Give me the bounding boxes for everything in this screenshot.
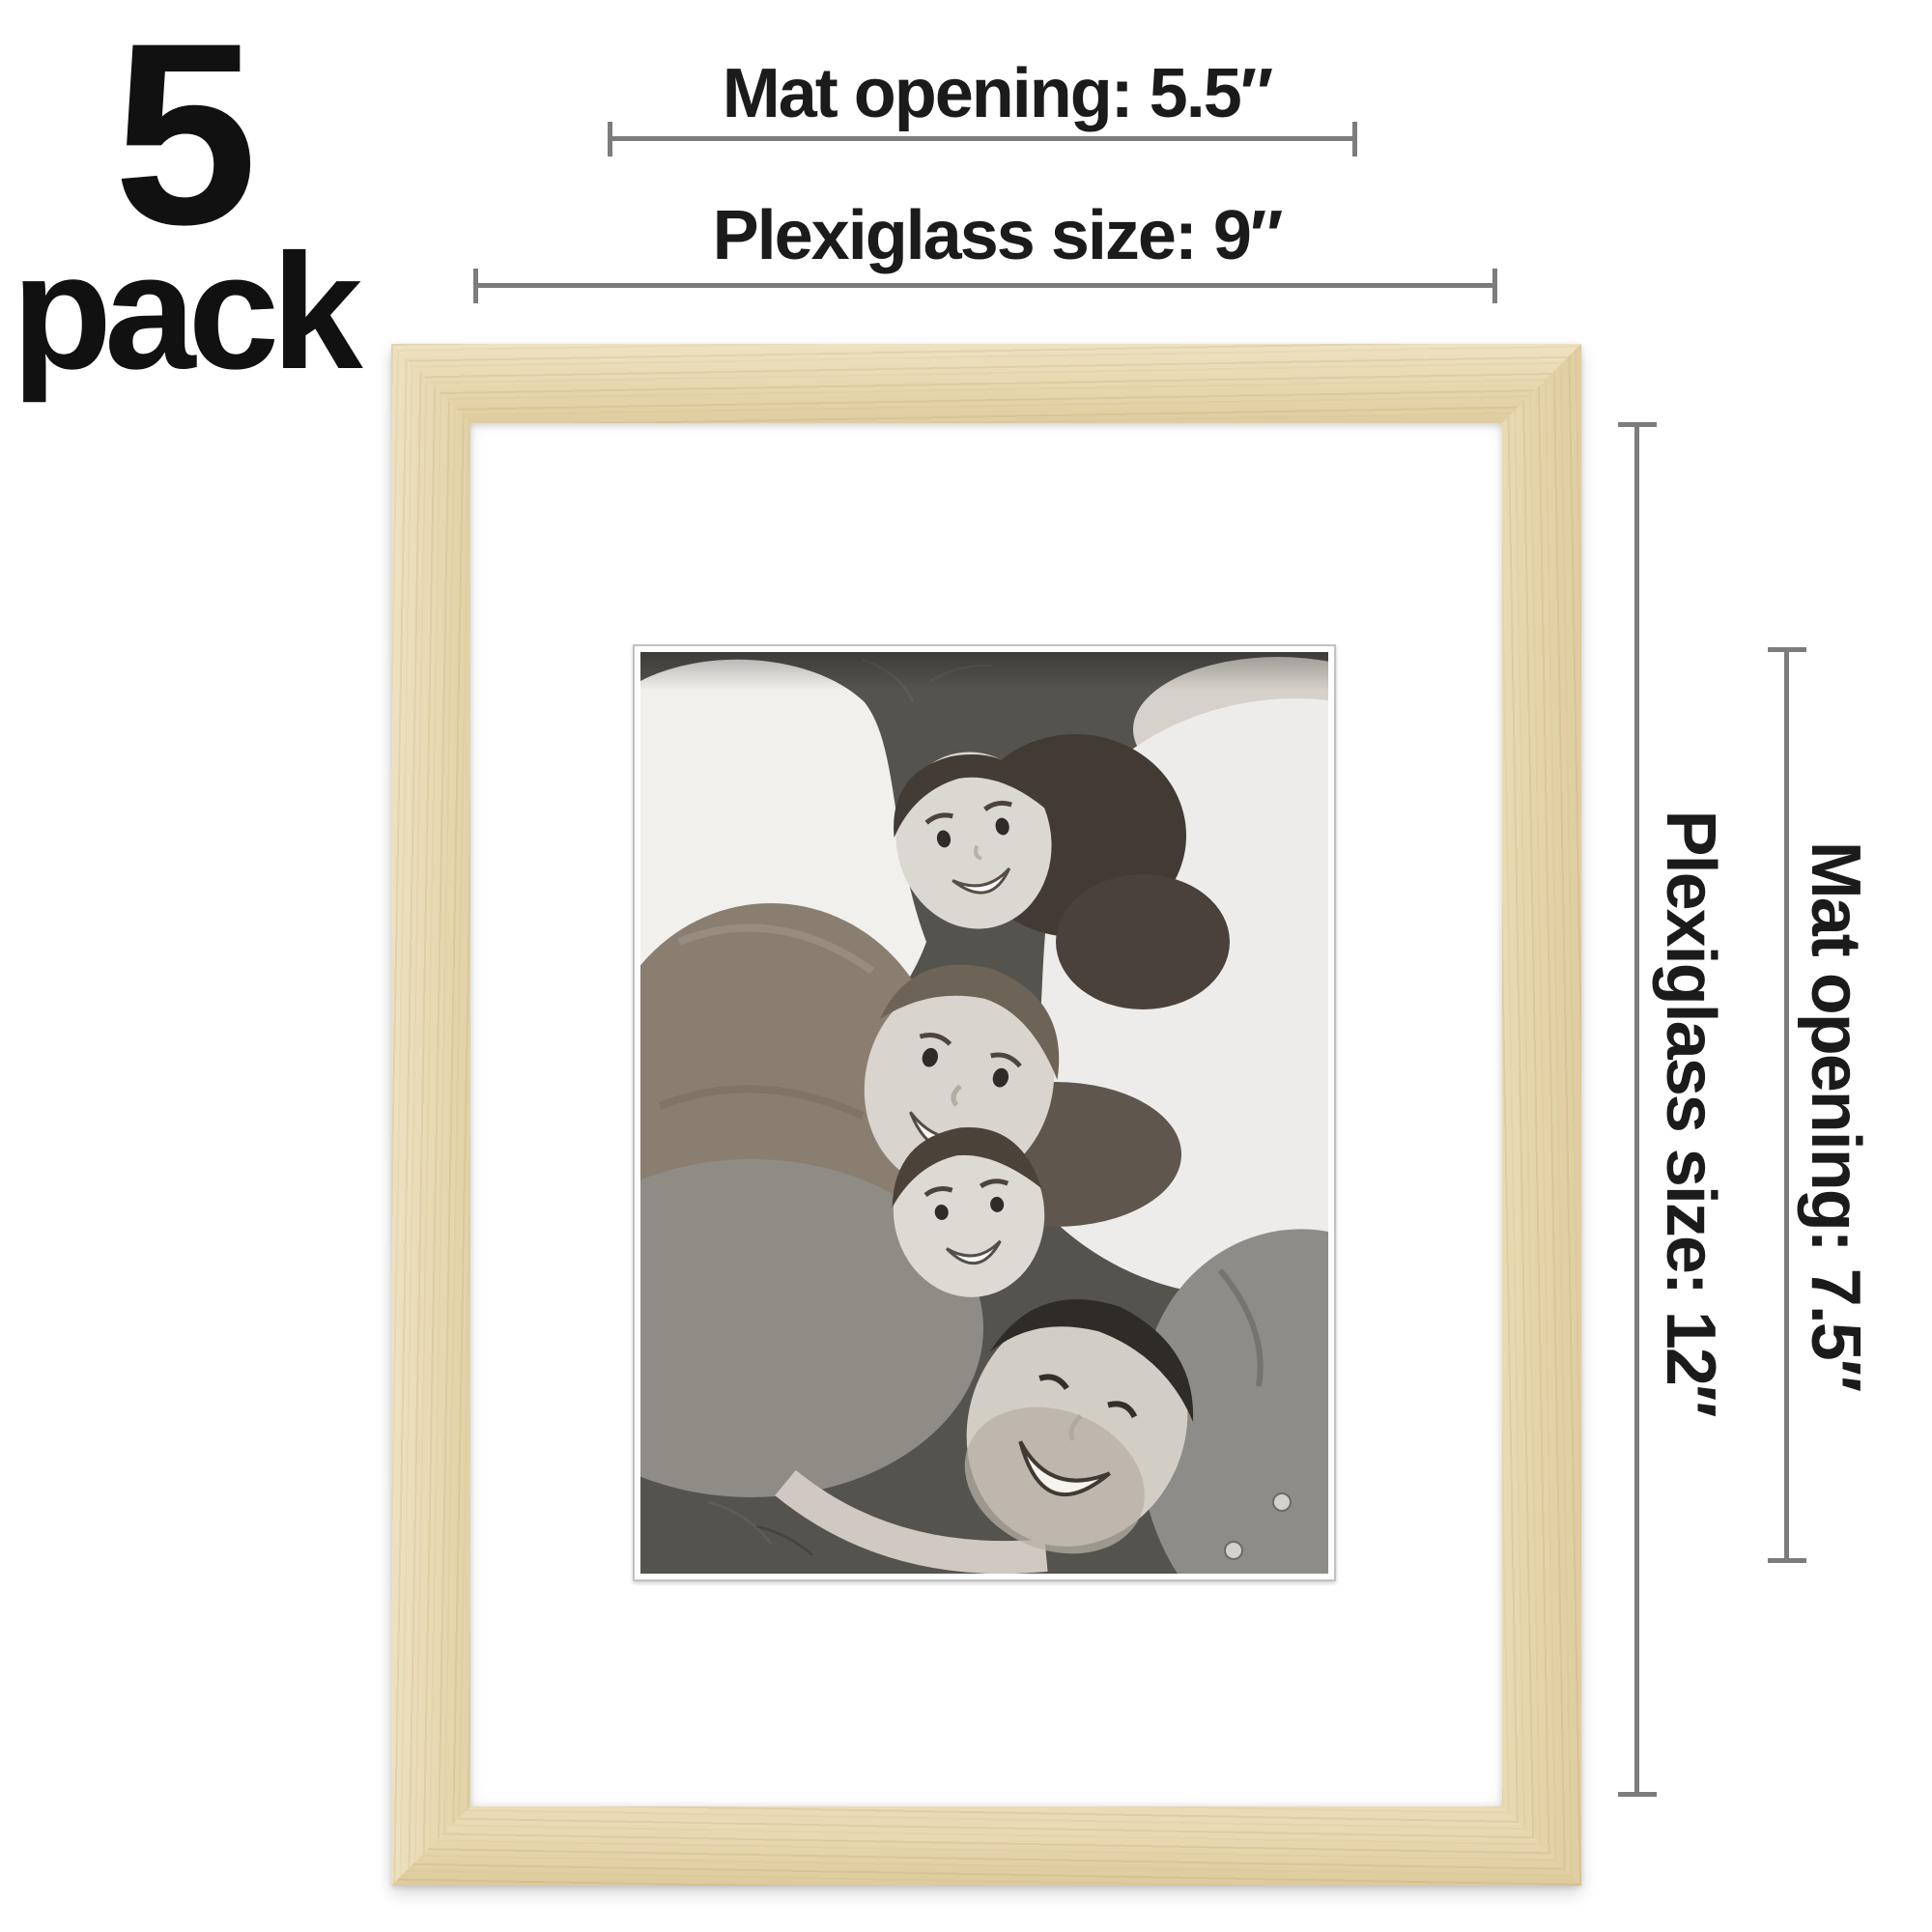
measure-bar (1784, 649, 1789, 1561)
plexiglass-height-measure-line (1618, 422, 1657, 1797)
mat-opening-width-measure-line (608, 122, 1357, 156)
mat-opening (633, 644, 1336, 1581)
family-photo (640, 652, 1328, 1574)
frame-wood-top (391, 344, 1581, 423)
plexiglass-height-label: Plexiglass size: 12″ (1652, 678, 1729, 1548)
product-infographic: 5 pack Mat opening: 5.5″ Plexiglass size… (0, 0, 1932, 1932)
frame-wood-left (391, 344, 470, 1886)
frame-wood-bottom (391, 1806, 1581, 1886)
measure-bar (610, 136, 1355, 141)
pack-count-word: pack (10, 230, 357, 394)
family-photo-illustration (640, 652, 1328, 1574)
plexiglass-width-measure-line (473, 269, 1497, 303)
frame-wood-right (1502, 344, 1581, 1886)
mat-opening-width-label: Mat opening: 5.5″ (562, 59, 1432, 128)
measure-bar (1634, 424, 1639, 1795)
plexiglass-width-label: Plexiglass size: 9″ (562, 201, 1432, 270)
frame-mat (470, 423, 1502, 1806)
picture-frame (391, 344, 1581, 1886)
mat-opening-height-label: Mat opening: 7.5″ (1797, 681, 1874, 1550)
measure-bar (475, 283, 1495, 288)
